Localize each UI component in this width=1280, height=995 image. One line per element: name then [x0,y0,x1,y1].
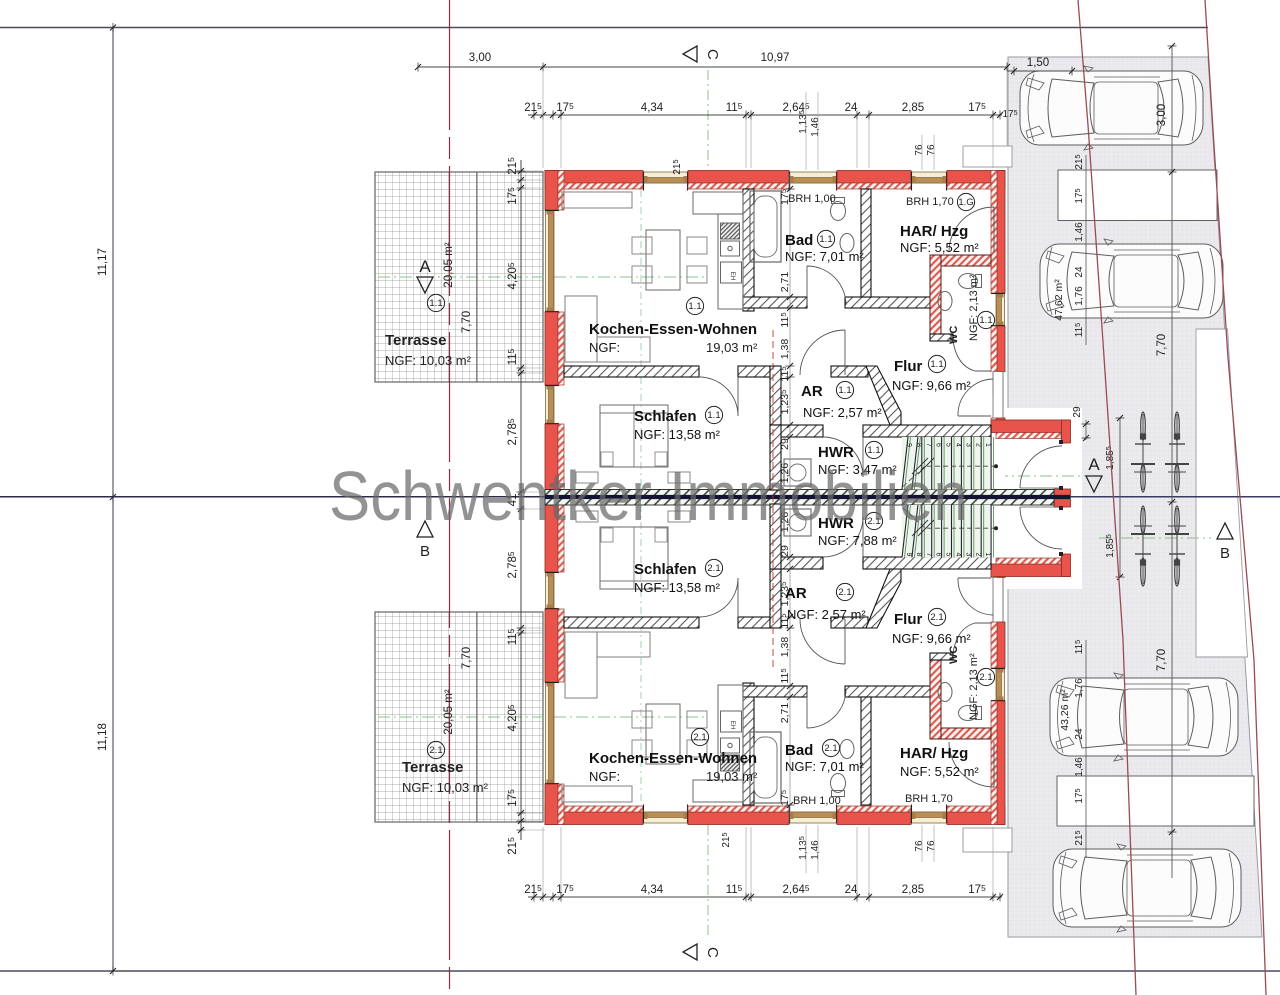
svg-text:NGF:: NGF: [589,340,620,355]
svg-text:29: 29 [779,438,791,450]
svg-text:Terrasse: Terrasse [402,759,463,776]
svg-text:2: 2 [974,553,981,557]
svg-text:6: 6 [935,553,942,557]
svg-text:2.1: 2.1 [838,587,851,598]
svg-text:1.1: 1.1 [429,298,442,309]
svg-text:NGF: 9,66 m²: NGF: 9,66 m² [892,378,971,393]
svg-text:EH: EH [729,720,736,729]
svg-text:8: 8 [915,443,922,447]
svg-text:24: 24 [845,102,858,114]
svg-text:AR: AR [801,383,823,400]
svg-text:Schlafen: Schlafen [634,408,697,425]
svg-text:4,34: 4,34 [641,884,664,896]
svg-text:1.1: 1.1 [930,359,943,370]
svg-text:2,85: 2,85 [902,884,924,896]
svg-text:6: 6 [935,443,942,447]
svg-text:1,46: 1,46 [1074,757,1085,777]
svg-text:47,62 m²: 47,62 m² [1053,279,1065,321]
svg-text:NGF: 13,58 m²: NGF: 13,58 m² [634,580,721,595]
svg-text:7,70: 7,70 [1156,334,1168,356]
svg-text:1.1: 1.1 [688,301,701,312]
svg-text:1.1: 1.1 [867,445,880,456]
svg-text:19,03 m²: 19,03 m² [706,340,758,355]
svg-text:Bad: Bad [785,232,813,249]
svg-text:NGF: 2,57 m²: NGF: 2,57 m² [787,607,866,622]
svg-text:24: 24 [1074,266,1085,278]
svg-text:Bad: Bad [785,742,813,759]
svg-text:BRH 1,70: BRH 1,70 [906,196,954,208]
svg-text:1,46: 1,46 [810,840,821,860]
svg-text:NGF: 5,52 m²: NGF: 5,52 m² [900,764,979,779]
svg-text:2.1: 2.1 [824,743,837,754]
svg-text:20,05 m²: 20,05 m² [443,689,455,735]
svg-text:1: 1 [984,553,991,557]
svg-text:1,76: 1,76 [1074,678,1085,698]
svg-text:3,00: 3,00 [469,52,491,64]
svg-text:9: 9 [905,443,912,447]
svg-text:4: 4 [955,443,962,447]
svg-text:Terrasse: Terrasse [385,332,446,349]
svg-text:NGF: 5,52 m²: NGF: 5,52 m² [900,240,979,255]
svg-text:3: 3 [964,443,971,447]
svg-text:7: 7 [925,443,932,447]
svg-text:Kochen-Essen-Wohnen: Kochen-Essen-Wohnen [589,321,757,338]
svg-text:NGF: 2,13 m²: NGF: 2,13 m² [968,274,980,341]
svg-text:8: 8 [915,553,922,557]
svg-text:NGF: 9,66 m²: NGF: 9,66 m² [892,631,971,646]
svg-text:1: 1 [984,443,991,447]
svg-text:11,17: 11,17 [97,248,109,276]
svg-text:7: 7 [925,553,932,557]
svg-text:2,71: 2,71 [779,272,791,293]
svg-text:B: B [1220,545,1230,562]
svg-text:1,50: 1,50 [1027,57,1049,69]
svg-text:2.1: 2.1 [707,563,720,574]
svg-text:NGF: 2,13 m²: NGF: 2,13 m² [968,653,980,720]
svg-text:1.1: 1.1 [979,315,992,326]
svg-text:1,46: 1,46 [1074,222,1085,242]
svg-text:NGF: 10,03 m²: NGF: 10,03 m² [402,780,489,795]
svg-text:29: 29 [779,545,791,557]
svg-text:BRH 1,00: BRH 1,00 [793,795,841,807]
svg-text:NGF: 13,58 m²: NGF: 13,58 m² [634,427,721,442]
svg-text:Schwentker Immobilien: Schwentker Immobilien [329,456,968,534]
svg-text:2.1: 2.1 [693,732,706,743]
svg-text:HAR/ Hzg: HAR/ Hzg [900,223,968,240]
svg-text:1.1: 1.1 [707,410,720,421]
svg-text:NGF: 7,01 m²: NGF: 7,01 m² [785,759,864,774]
svg-text:76: 76 [914,840,925,852]
svg-text:43,26 m²: 43,26 m² [1059,689,1071,731]
svg-text:WC: WC [948,326,960,344]
svg-text:2.1: 2.1 [979,672,992,683]
svg-text:20,05 m²: 20,05 m² [443,242,455,288]
svg-text:11,18: 11,18 [97,723,109,751]
svg-text:24: 24 [845,884,858,896]
svg-text:29: 29 [1072,406,1083,418]
svg-text:EH: EH [729,271,736,280]
svg-text:9: 9 [905,553,912,557]
svg-text:19,03 m²: 19,03 m² [706,769,758,784]
svg-text:NGF: 7,01 m²: NGF: 7,01 m² [785,249,864,264]
svg-text:NGF: 10,03 m²: NGF: 10,03 m² [385,353,472,368]
svg-text:5: 5 [945,443,952,447]
svg-text:1,38: 1,38 [779,339,791,360]
svg-text:7,70: 7,70 [1156,649,1168,671]
svg-text:5: 5 [945,553,952,557]
svg-text:C: C [704,49,721,60]
svg-text:NGF: 2,57 m²: NGF: 2,57 m² [803,405,882,420]
svg-text:NGF: 7,88 m²: NGF: 7,88 m² [818,533,897,548]
svg-text:3: 3 [964,553,971,557]
svg-text:2.1: 2.1 [429,745,442,756]
svg-text:1.1: 1.1 [819,234,832,245]
svg-text:A: A [419,257,431,276]
svg-text:3,00: 3,00 [1156,104,1168,126]
svg-text:10,97: 10,97 [761,52,790,64]
svg-text:HAR/ Hzg: HAR/ Hzg [900,745,968,762]
svg-text:7,70: 7,70 [461,647,473,669]
svg-text:Flur: Flur [894,358,922,375]
svg-text:Kochen-Essen-Wohnen: Kochen-Essen-Wohnen [589,750,757,767]
svg-text:A: A [1088,455,1100,474]
svg-text:4,34: 4,34 [641,102,664,114]
svg-text:4: 4 [955,553,962,557]
svg-text:1,46: 1,46 [810,117,821,137]
svg-text:WC: WC [948,646,960,664]
svg-text:AR: AR [785,585,807,602]
svg-text:2,85: 2,85 [902,102,924,114]
svg-text:BRH 1,70: BRH 1,70 [905,793,953,805]
svg-text:1.G: 1.G [958,197,973,208]
svg-text:BRH 1,00: BRH 1,00 [788,193,836,205]
svg-text:7,70: 7,70 [461,311,473,333]
svg-text:2: 2 [974,443,981,447]
svg-text:24: 24 [1074,728,1085,740]
svg-text:76: 76 [926,144,937,156]
svg-text:NGF:: NGF: [589,769,620,784]
svg-text:1,76: 1,76 [1074,286,1085,306]
svg-text:76: 76 [914,144,925,156]
svg-text:1.1: 1.1 [838,385,851,396]
svg-text:Flur: Flur [894,611,922,628]
svg-text:B: B [420,543,430,560]
svg-text:76: 76 [926,840,937,852]
svg-text:C: C [704,947,721,958]
svg-text:2.1: 2.1 [930,612,943,623]
svg-text:2,71: 2,71 [779,703,791,724]
svg-text:1,38: 1,38 [779,637,791,658]
svg-text:Schlafen: Schlafen [634,561,697,578]
